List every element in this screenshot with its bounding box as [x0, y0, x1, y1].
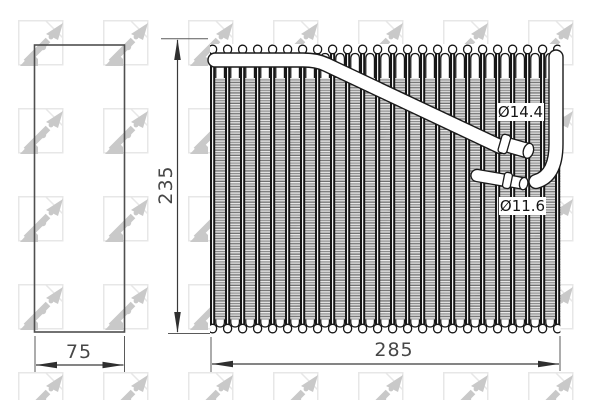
core-bottom-edge: [210, 320, 560, 335]
evaporator-technical-drawing: 235 285 75 Ø14.4 Ø11.6: [0, 0, 600, 400]
small-port-diameter-label: Ø11.6: [499, 197, 546, 215]
height-dimension-label: 235: [156, 155, 176, 215]
depth-dimension-label: 75: [49, 342, 109, 362]
large-port-diameter-label: Ø14.4: [497, 103, 544, 121]
small-port-stub: [477, 176, 506, 181]
width-dimension-label: 285: [364, 340, 424, 360]
